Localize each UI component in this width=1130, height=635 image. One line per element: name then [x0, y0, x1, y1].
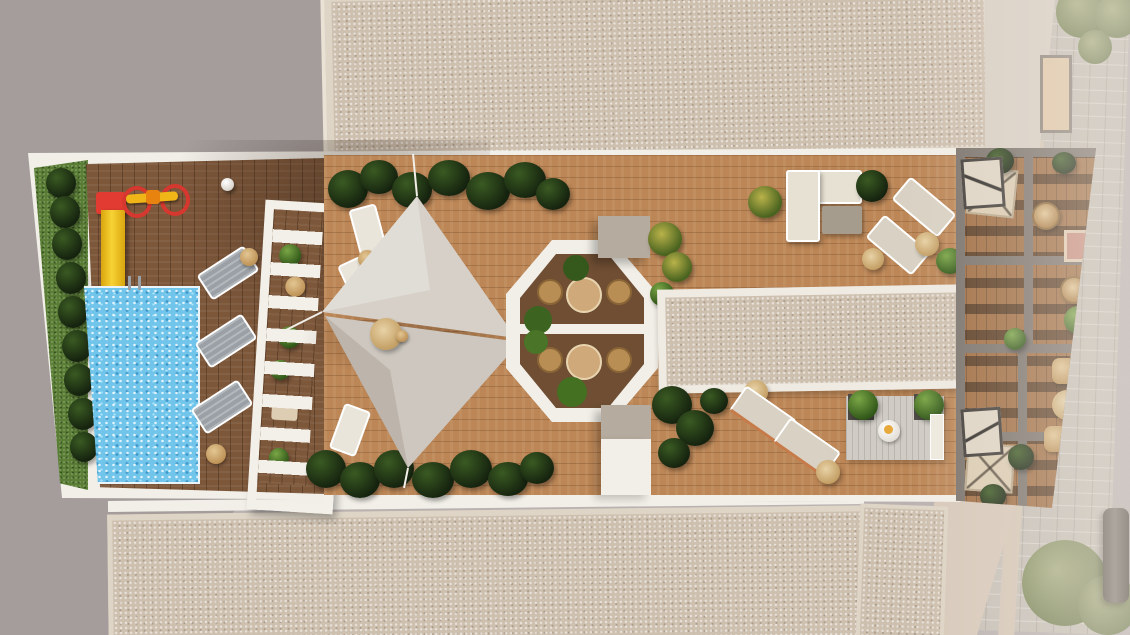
deck-lamp [221, 178, 234, 191]
food-tray [884, 425, 893, 434]
rattan-chair [607, 280, 631, 304]
shade-sail-lower [325, 316, 520, 468]
carousel-hub [146, 190, 160, 204]
octagon-bush [563, 255, 589, 281]
plant-cluster [658, 438, 690, 468]
hedge-plant [70, 432, 98, 462]
octagonal-dining-patio [506, 240, 658, 422]
palm-plant [662, 252, 692, 282]
palm-plant [748, 186, 782, 218]
terrace-wall [1018, 348, 1027, 508]
potted-plant [856, 170, 888, 202]
tree [1078, 30, 1112, 64]
pool-ladder [126, 276, 144, 290]
octagon-bush [524, 330, 548, 354]
stair-bulkhead [960, 157, 1005, 210]
planter-bush [848, 390, 878, 420]
lounge-sofa [786, 170, 820, 242]
rattan-pouf [206, 444, 226, 464]
side-table [915, 232, 939, 256]
rug-bench [930, 414, 944, 460]
sail-line [404, 468, 408, 488]
coffee-table [822, 206, 862, 234]
ladder-rail [138, 276, 141, 290]
rattan-chair [538, 280, 562, 304]
playground-carousel [122, 184, 182, 214]
hedge-plant [58, 296, 88, 328]
gravel-patch-bottom-right [856, 504, 949, 635]
octagon-bush [557, 377, 587, 407]
skylight-gravel-strip [657, 284, 971, 393]
rooftop-render [0, 0, 1130, 635]
gravel-roof-bottom [107, 505, 864, 635]
hedge-plant [64, 364, 94, 396]
terrace-plant [1052, 152, 1076, 174]
ladder-rail [128, 276, 131, 290]
stool [396, 330, 408, 342]
hedge-plant [56, 262, 86, 294]
roof-bulkhead [598, 216, 650, 258]
roof-bulkhead [601, 405, 651, 439]
side-table [816, 460, 840, 484]
plant-cluster [700, 388, 728, 414]
side-table [862, 248, 884, 270]
hedge-plant [46, 168, 76, 198]
stair-bulkhead [960, 407, 1003, 458]
parked-car [1103, 508, 1129, 603]
palm-plant [648, 222, 682, 256]
dining-table [567, 345, 601, 379]
octagon-bush [524, 306, 552, 334]
sail-line [282, 312, 322, 332]
bulkhead-base [601, 439, 651, 495]
awning-top-right [1040, 55, 1072, 133]
rattan-pouf [240, 248, 258, 266]
swimming-pool [80, 286, 200, 484]
dining-table [567, 278, 601, 312]
terrace-bush [1004, 328, 1026, 350]
terrace-plant [1008, 444, 1034, 470]
hanging-chair [1032, 202, 1060, 230]
terrace-wall [1024, 148, 1033, 348]
hedge-plant [52, 228, 82, 260]
rattan-chair [607, 348, 631, 372]
hedge-plant [50, 196, 80, 228]
sail-line [413, 154, 417, 196]
